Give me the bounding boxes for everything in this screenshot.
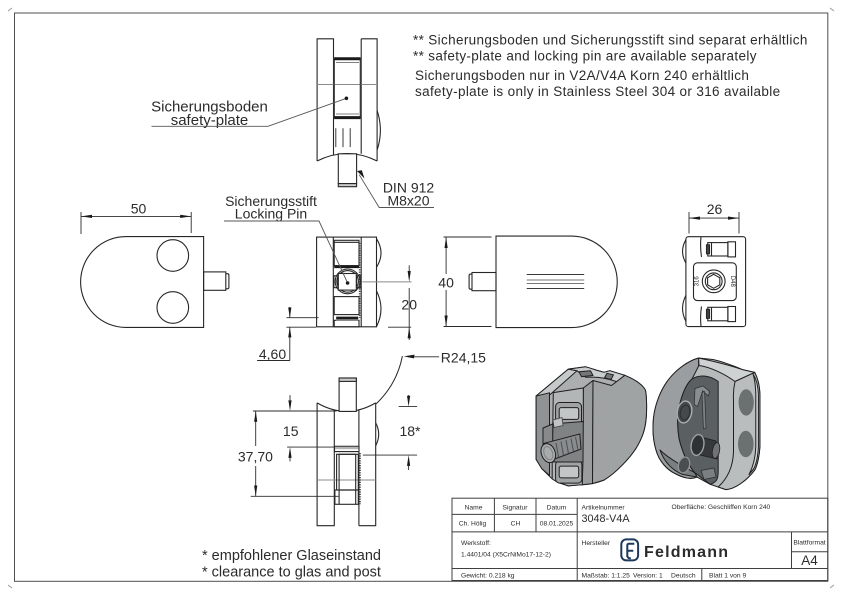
svg-text:D48: D48 — [729, 276, 735, 288]
svg-text:M8x20: M8x20 — [387, 193, 429, 209]
svg-text:Feldmann: Feldmann — [644, 544, 729, 561]
svg-text:Deutsch: Deutsch — [671, 573, 696, 580]
svg-text:A4: A4 — [801, 553, 818, 568]
svg-text:Oberfläche: Geschliffen Korn: Oberfläche: Geschliffen Korn 240 — [672, 504, 771, 511]
svg-text:316: 316 — [695, 276, 701, 287]
svg-text:1.4401/04 (X5CrNiMo17-12-2): 1.4401/04 (X5CrNiMo17-12-2) — [461, 552, 551, 559]
svg-text:26: 26 — [707, 201, 723, 217]
svg-text:40: 40 — [438, 275, 454, 291]
svg-text:* empfohlener Glaseinstand: * empfohlener Glaseinstand — [202, 548, 381, 564]
svg-text:50: 50 — [131, 201, 147, 217]
svg-text:Sicherungsboden nur in V2A/V4A: Sicherungsboden nur in V2A/V4A Korn 240 … — [415, 68, 749, 83]
svg-text:Werkstoff:: Werkstoff: — [461, 540, 491, 547]
svg-text:Blattformat: Blattformat — [793, 540, 825, 547]
svg-text:Ch. Hölig: Ch. Hölig — [459, 521, 487, 528]
svg-text:Maßstab: 1:1.25: Maßstab: 1:1.25 — [582, 573, 631, 580]
svg-text:20: 20 — [401, 297, 417, 313]
svg-text:Hersteller: Hersteller — [582, 540, 611, 547]
svg-text:Datum: Datum — [547, 505, 567, 512]
svg-text:15: 15 — [283, 423, 299, 439]
svg-text:08.01.2025: 08.01.2025 — [540, 521, 574, 528]
svg-text:Blatt 1 von 9: Blatt 1 von 9 — [709, 573, 746, 580]
svg-text:Name: Name — [465, 505, 483, 512]
svg-text:safety-plate is only in Stainl: safety-plate is only in Stainless Steel … — [415, 84, 780, 99]
svg-text:Version: 1: Version: 1 — [633, 573, 663, 580]
svg-text:Signatur: Signatur — [503, 505, 529, 512]
svg-text:4,60: 4,60 — [259, 346, 286, 362]
svg-text:* clearance to glas and post: * clearance to glas and post — [202, 565, 381, 581]
svg-text:** Sicherungsboden und Sicheru: ** Sicherungsboden und Sicherungsstift s… — [413, 33, 808, 48]
svg-text:18*: 18* — [399, 423, 421, 439]
svg-text:CH: CH — [511, 521, 521, 528]
svg-text:R24,15: R24,15 — [441, 350, 486, 366]
svg-text:3048-V4A: 3048-V4A — [582, 513, 631, 525]
svg-text:** safety-plate and locking pi: ** safety-plate and locking pin are avai… — [413, 49, 757, 64]
svg-text:Artikelnummer: Artikelnummer — [582, 505, 626, 512]
svg-text:Gewicht: 0.218 kg: Gewicht: 0.218 kg — [461, 573, 515, 580]
svg-text:37,70: 37,70 — [238, 449, 273, 465]
svg-text:Locking Pin: Locking Pin — [235, 206, 307, 222]
